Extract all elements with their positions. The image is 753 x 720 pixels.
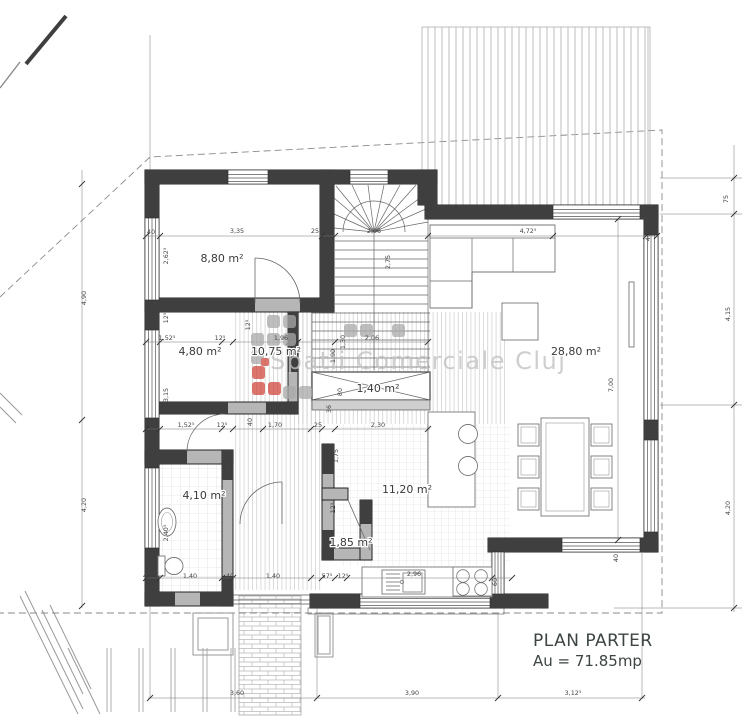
dining-table <box>541 418 589 516</box>
dimension-label: 2,62⁵ <box>162 247 170 264</box>
dimension-label: 2,06 <box>367 227 381 235</box>
window <box>145 330 159 418</box>
window-glazed-wall <box>644 235 658 420</box>
site-edge-line <box>0 407 16 423</box>
dining-furniture <box>518 418 612 516</box>
glazed-door <box>492 552 504 594</box>
site-edge-line <box>0 62 20 88</box>
window <box>562 538 640 552</box>
room-label-kitchen: 11,20 m² <box>382 483 432 496</box>
dimension-label: 1,75 <box>332 449 340 463</box>
dimension-label: 40 <box>226 572 234 580</box>
stove <box>453 567 492 596</box>
island-sink-bowl <box>459 425 478 444</box>
dimension-label: 12⁵ <box>338 572 349 580</box>
dimension-label: 1,40 <box>266 572 280 580</box>
room-label-hallway: 10,75 m² <box>251 345 301 358</box>
dimension-label: 57⁵ <box>322 572 333 580</box>
room-label-bedroom: 8,80 m² <box>200 252 243 265</box>
toilet <box>158 556 183 576</box>
site-edge-line <box>0 393 22 415</box>
dimension-label: 1,40 <box>183 572 197 580</box>
dimension-label: 12⁵ <box>244 319 252 330</box>
room-label-bathroom: 4,10 m² <box>182 489 225 502</box>
dimension-label: 75 <box>722 195 730 203</box>
dimension-label: 1,30 <box>339 335 347 349</box>
radiator <box>629 282 634 347</box>
dimension-label: 3,90 <box>405 689 419 697</box>
dimension-label: 3,35 <box>230 227 244 235</box>
dimension-label: 3,12⁵ <box>565 689 582 697</box>
dimension-label: 3,60 <box>230 689 244 697</box>
dimension-label: 2,30 <box>371 421 385 429</box>
dimension-label: 2,40⁵ <box>162 524 170 541</box>
dimension-label: 60 <box>491 578 499 586</box>
dimension-label: 1,90 <box>329 349 337 363</box>
room-label-living: 28,80 m² <box>551 345 601 358</box>
parking-line <box>20 596 78 714</box>
dimension-label: 1,52⁵ <box>178 421 195 429</box>
dimension-label: 4,20 <box>724 501 732 515</box>
plan-area-total: Au = 71.85mp <box>533 652 642 670</box>
room-label-pantry: 1,85 m² <box>329 536 372 549</box>
room-label-room2: 4,80 m² <box>178 345 221 358</box>
dimension-label: 2,06 <box>365 334 379 342</box>
deck-boards <box>107 648 235 712</box>
dimension-label: 3,15 <box>162 388 170 402</box>
dimension-label: 1,70 <box>268 421 282 429</box>
upper-terrace-hatch <box>422 27 650 205</box>
dimension-label: 1,52⁵ <box>159 334 176 342</box>
dimension-label: 2,75 <box>384 255 392 269</box>
window <box>553 205 640 219</box>
window-glazed-wall <box>644 440 658 532</box>
site-diagonal-mark <box>26 16 66 64</box>
dimension-label: 1,96 <box>274 334 288 342</box>
dimension-label: 40 <box>246 418 254 426</box>
floor-plan-canvas: Spatii Comerciale Cluj 8,80 m² 4,80 m² 1… <box>0 0 753 720</box>
dimension-label: 12⁵ <box>215 334 226 342</box>
dimension-label: 12⁵ <box>217 421 228 429</box>
dimension-label: 12⁵ <box>329 502 337 513</box>
island-sink-bowl <box>459 457 478 476</box>
dimension-label: 80 <box>336 388 344 396</box>
window <box>228 170 268 184</box>
dimension-label: 40 <box>644 233 652 241</box>
dimension-label: 40 <box>147 228 155 236</box>
dimension-label: 25 <box>314 421 322 429</box>
dimension-label: 12⁵ <box>224 459 232 470</box>
dimension-label: 4,20 <box>80 498 88 512</box>
plan-title: PLAN PARTER <box>533 631 653 651</box>
dimension-label: 40 <box>612 554 620 562</box>
dimension-label: 4,15 <box>724 307 732 321</box>
parking-line <box>25 591 83 709</box>
floor-plan-svg: Spatii Comerciale Cluj 8,80 m² 4,80 m² 1… <box>0 0 753 720</box>
coffee-table <box>502 303 538 340</box>
entry-step-inner <box>198 618 228 650</box>
dimension-label: 7,00 <box>607 378 615 392</box>
sofa <box>430 225 555 308</box>
dimension-label: 4,90 <box>80 291 88 305</box>
dimension-label: 25 <box>311 227 319 235</box>
window <box>350 170 388 184</box>
dimension-label: 2,07⁵ <box>323 540 331 557</box>
brick-walkway <box>239 596 301 715</box>
room-label-closet: 1,40 m² <box>356 382 399 395</box>
parking-line <box>50 605 91 689</box>
dimension-label: 40 <box>143 572 151 580</box>
bedroom-door-arc <box>255 258 300 303</box>
dimension-label: 4,72⁵ <box>520 227 537 235</box>
nook-door-arc <box>187 414 225 452</box>
side-step-inner <box>318 616 330 654</box>
window <box>145 468 159 548</box>
title-block: PLAN PARTER Au = 71.85mp <box>533 631 653 670</box>
dimension-label: 36 <box>325 405 333 413</box>
dimension-label: 12⁵ <box>162 312 170 323</box>
entry-step <box>193 613 233 655</box>
dimension-label: 2,96 <box>407 570 421 578</box>
watermark-text: Spatii Comerciale Cluj <box>270 347 566 375</box>
